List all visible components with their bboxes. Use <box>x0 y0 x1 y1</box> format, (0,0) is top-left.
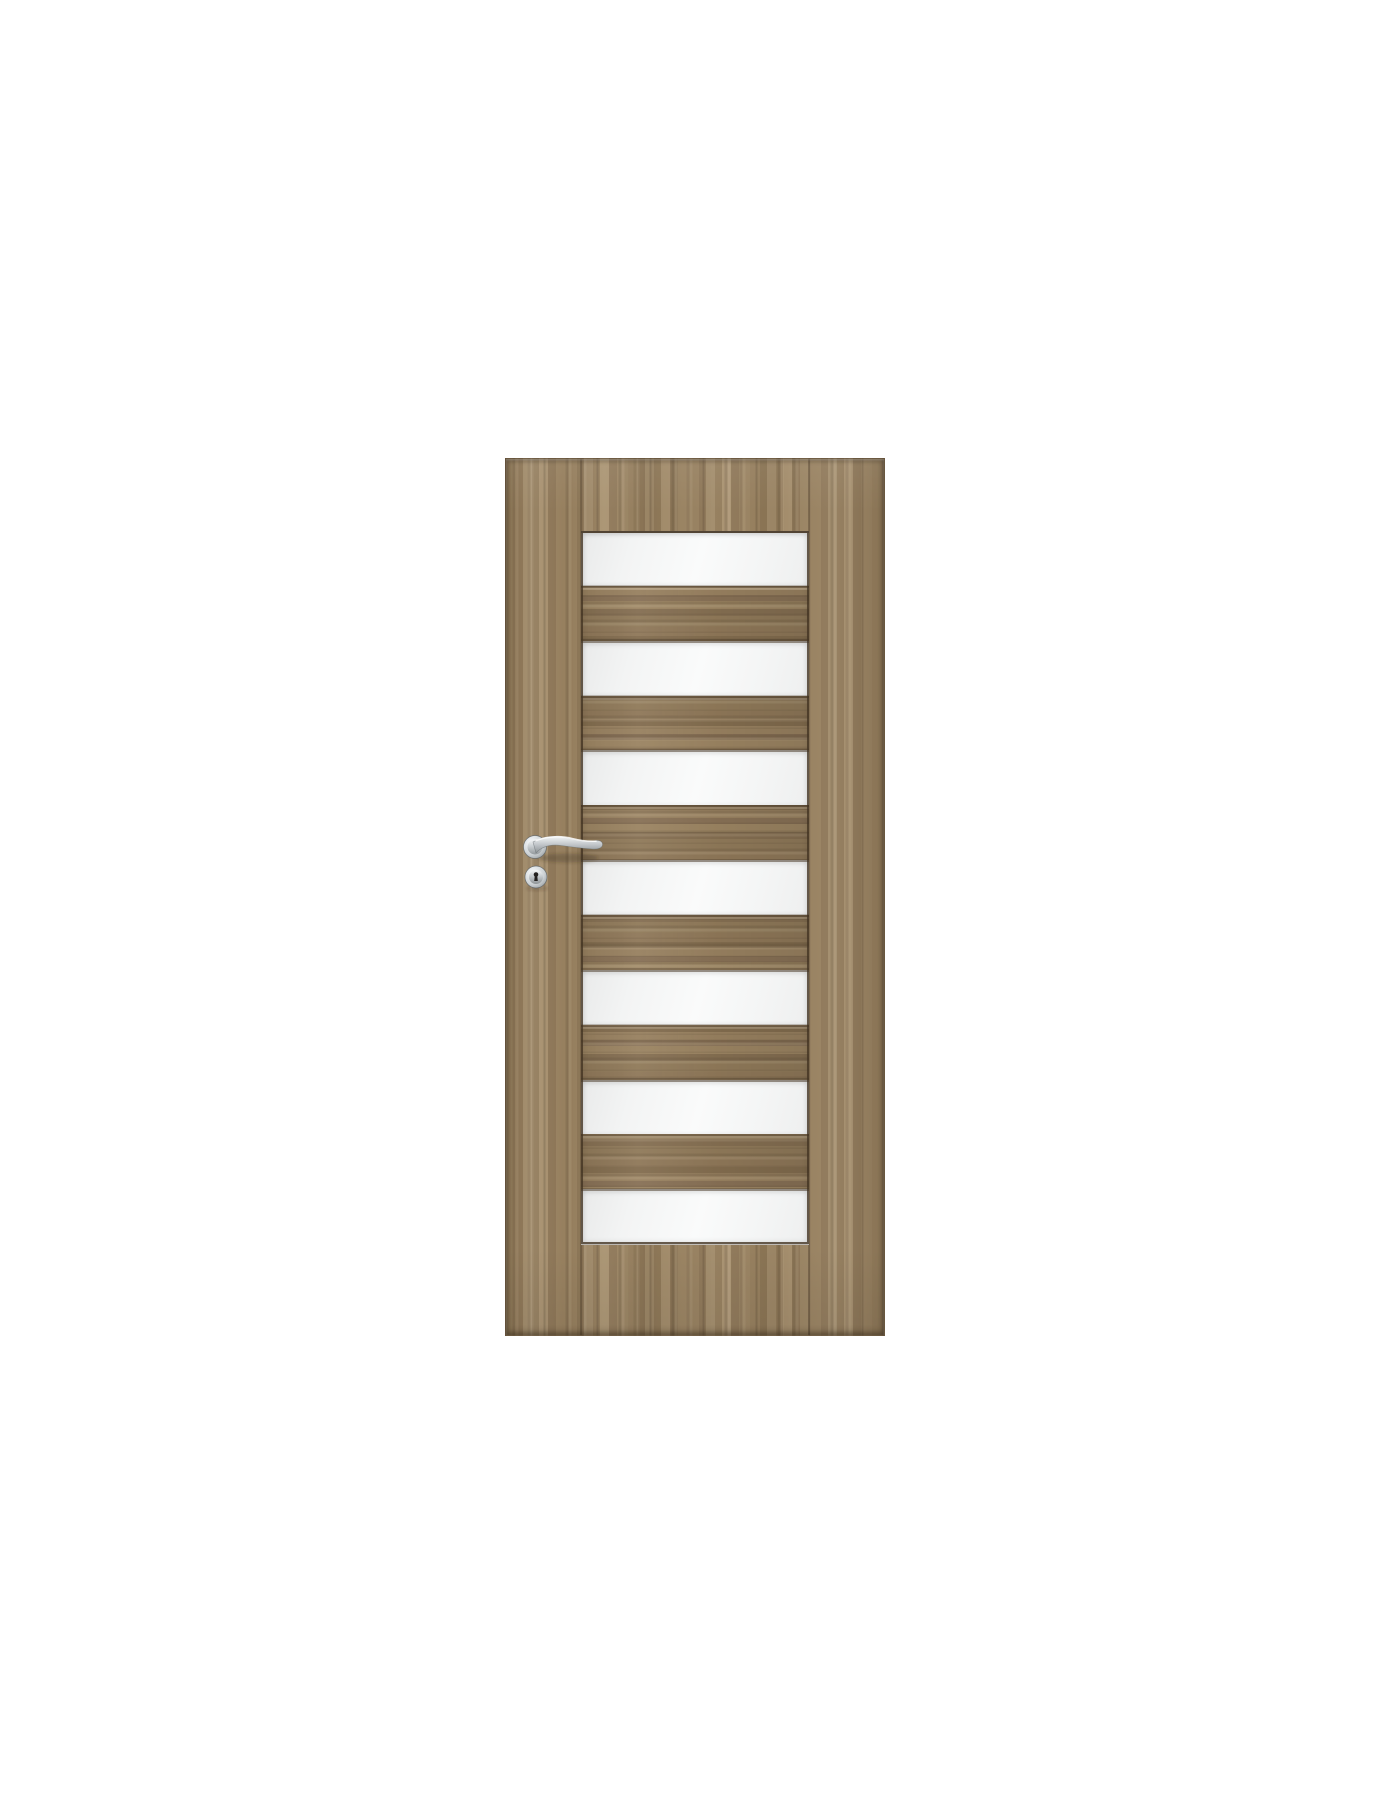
handle-shadow <box>538 854 598 863</box>
wood-slat <box>581 1025 809 1080</box>
glass-pane <box>581 531 809 586</box>
wood-slat <box>581 696 809 751</box>
wood-slat <box>581 1134 809 1189</box>
glass-pane <box>581 641 809 696</box>
door-hardware <box>506 814 626 909</box>
keyhole-slot <box>534 876 538 882</box>
glass-pane <box>581 1080 809 1135</box>
door <box>505 458 885 1336</box>
glass-pane <box>581 750 809 805</box>
wood-slat <box>581 586 809 641</box>
glass-pane <box>581 1189 809 1244</box>
product-photo-canvas <box>0 0 1400 1800</box>
wood-slat <box>581 915 809 970</box>
glass-pane <box>581 970 809 1025</box>
